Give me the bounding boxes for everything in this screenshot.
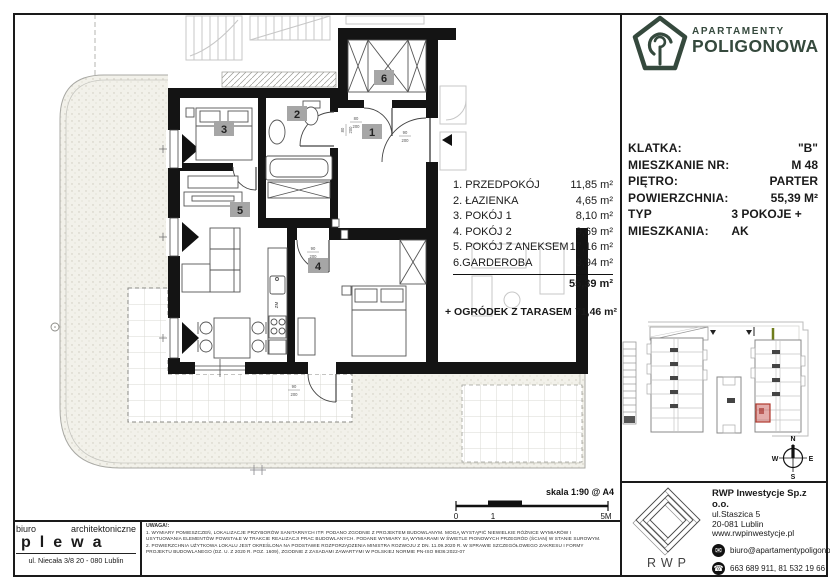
compass-w: W bbox=[772, 456, 779, 463]
notes-title: UWAGA!: bbox=[146, 523, 616, 530]
pentagon-logo-icon bbox=[630, 14, 690, 74]
info-row-typ: TYP MIESZKANIA:3 POKOJE + AK bbox=[628, 206, 818, 239]
scale-label: skala 1:90 @ A4 bbox=[546, 487, 614, 497]
developer-email: biuro@apartamentypoligonowa.pl bbox=[730, 546, 830, 555]
north-needle bbox=[791, 445, 794, 458]
architect-block: biuroarchitektoniczne plewa ul. Niecała … bbox=[16, 524, 136, 565]
phone-row: ☎ 663 689 911, 81 532 19 66 bbox=[712, 562, 826, 575]
building-right bbox=[751, 340, 805, 432]
architect-divider bbox=[140, 520, 142, 577]
room-list: 1. PRZEDPOKÓJ11,85 m² 2. ŁAZIENKA4,65 m²… bbox=[453, 178, 613, 290]
svg-text:0: 0 bbox=[454, 512, 459, 521]
room-row: 1. PRZEDPOKÓJ11,85 m² bbox=[453, 178, 613, 194]
panel-divider bbox=[620, 13, 622, 577]
apartment-info: KLATKA:"B" MIESZKANIE NR:M 48 PIĘTRO:PAR… bbox=[628, 140, 818, 239]
scale-bar: skala 1:90 @ A4 0 1 5M bbox=[448, 486, 616, 522]
room-row: 4. POKÓJ 29,69 m² bbox=[453, 225, 613, 241]
developer-website: www.rwpinwestycje.pl bbox=[712, 529, 826, 539]
floorplan-sheet: { "logo": {"line1": "APARTAMENTY", "line… bbox=[0, 0, 830, 587]
center-building bbox=[717, 377, 741, 433]
architect-address: ul. Niecała 3/8 20 - 080 Lublin bbox=[16, 556, 136, 565]
info-row-mieszkanie: MIESZKANIE NR:M 48 bbox=[628, 157, 818, 174]
svg-text:1: 1 bbox=[491, 512, 496, 521]
garden-area-line: + OGRÓDEK Z TARASEM71,46 m² bbox=[445, 306, 617, 318]
architect-type: biuroarchitektoniczne bbox=[16, 524, 136, 534]
architect-rule bbox=[16, 553, 136, 554]
brand-name: APARTAMENTY POLIGONOWA bbox=[692, 26, 819, 56]
envelope-icon: ✉ bbox=[712, 544, 725, 557]
brand-line2: POLIGONOWA bbox=[692, 37, 819, 56]
info-row-klatka: KLATKA:"B" bbox=[628, 140, 818, 157]
room-row: 6.GARDEROBA3,94 m² bbox=[453, 256, 613, 272]
room-row: 5. POKÓJ Z ANEKSEM17,16 m² bbox=[453, 240, 613, 256]
notes-block: UWAGA!: 1. WYMIARY POMIESZCZEŃ, LOKALIZA… bbox=[146, 523, 616, 555]
room-row: 3. POKÓJ 18,10 m² bbox=[453, 209, 613, 225]
compass-e: E bbox=[809, 456, 814, 463]
compass-n: N bbox=[790, 436, 795, 443]
rwp-logo-icon bbox=[628, 486, 710, 566]
architect-name: plewa bbox=[16, 534, 136, 552]
garage-strip bbox=[623, 342, 636, 424]
info-row-pietro: PIĘTRO:PARTER bbox=[628, 173, 818, 190]
developer-phones: 663 689 911, 81 532 19 66 bbox=[730, 564, 825, 573]
rwp-logo-text: RWP bbox=[640, 556, 698, 570]
email-row: ✉ biuro@apartamentypoligonowa.pl bbox=[712, 544, 826, 557]
developer-name: RWP Inwestycje Sp.z o.o. bbox=[712, 488, 826, 510]
room-total: 55,39 m² bbox=[453, 274, 613, 290]
room-row: 2. ŁAZIENKA4,65 m² bbox=[453, 194, 613, 210]
compass-rose: N S W E bbox=[772, 436, 814, 481]
phone-icon: ☎ bbox=[712, 562, 725, 575]
svg-text:5M: 5M bbox=[600, 512, 611, 521]
info-row-powierzchnia: POWIERZCHNIA:55,39 M² bbox=[628, 190, 818, 207]
compass-s: S bbox=[791, 474, 796, 481]
building-left bbox=[647, 338, 707, 432]
developer-info: RWP Inwestycje Sp.z o.o. ul.Staszica 5 2… bbox=[712, 488, 826, 575]
site-plan-map: N S W E bbox=[620, 300, 830, 484]
